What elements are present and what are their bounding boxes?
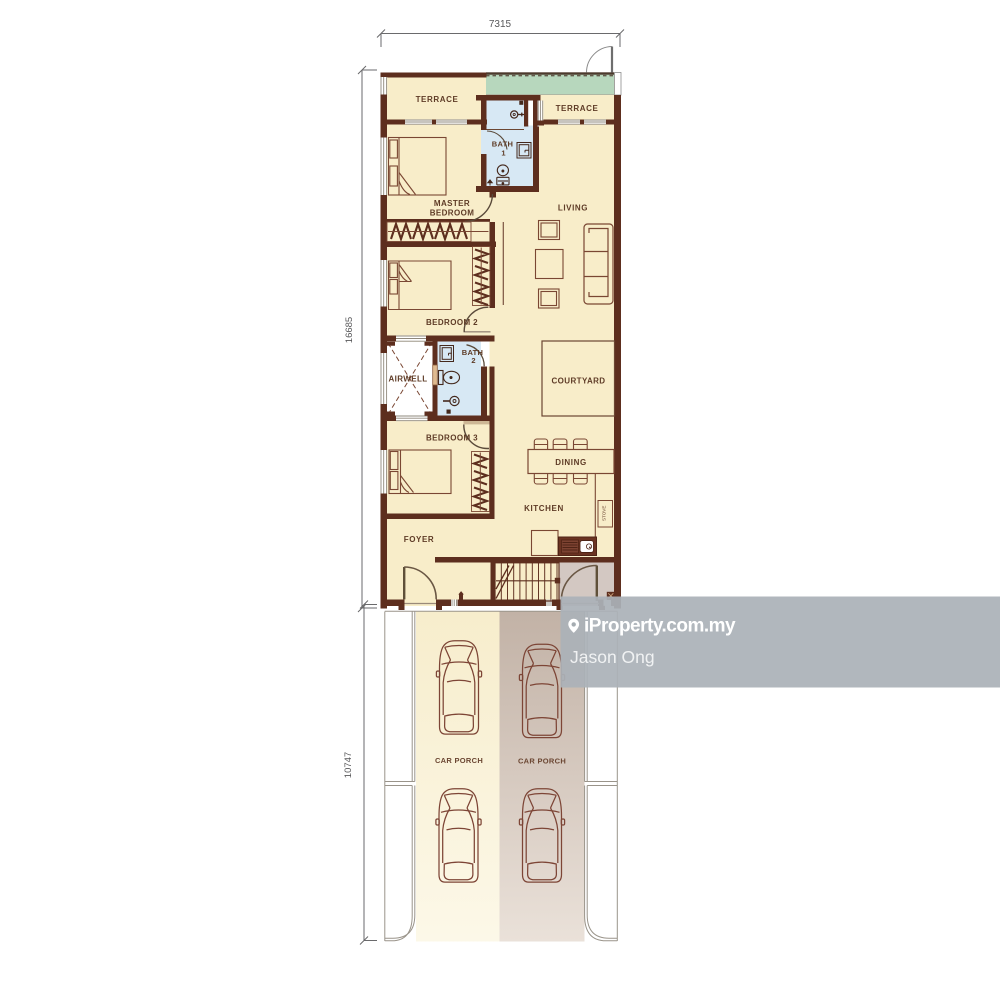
svg-text:KITCHEN: KITCHEN bbox=[524, 504, 564, 513]
svg-text:BEDROOM: BEDROOM bbox=[430, 209, 475, 218]
svg-text:Jason Ong: Jason Ong bbox=[570, 647, 655, 667]
svg-text:STOVE: STOVE bbox=[601, 506, 606, 522]
svg-text:iProperty.com.my: iProperty.com.my bbox=[584, 616, 736, 637]
svg-text:TERRACE: TERRACE bbox=[416, 95, 459, 104]
svg-text:CAR PORCH: CAR PORCH bbox=[518, 757, 566, 766]
svg-text:BEDROOM 2: BEDROOM 2 bbox=[426, 318, 478, 327]
svg-text:DINING: DINING bbox=[555, 458, 587, 467]
svg-text:10747: 10747 bbox=[343, 752, 354, 778]
svg-text:CAR PORCH: CAR PORCH bbox=[435, 756, 483, 765]
svg-text:FOYER: FOYER bbox=[404, 535, 435, 544]
svg-text:16685: 16685 bbox=[344, 317, 355, 343]
svg-text:2: 2 bbox=[471, 356, 475, 365]
svg-text:LIVING: LIVING bbox=[558, 204, 588, 213]
svg-text:BATH: BATH bbox=[492, 140, 513, 149]
svg-text:BEDROOM 3: BEDROOM 3 bbox=[426, 434, 478, 443]
svg-text:MASTER: MASTER bbox=[434, 199, 470, 208]
svg-text:7315: 7315 bbox=[489, 19, 512, 30]
svg-text:COURTYARD: COURTYARD bbox=[552, 377, 606, 386]
svg-text:1: 1 bbox=[501, 149, 505, 158]
svg-text:AIRWELL: AIRWELL bbox=[388, 374, 427, 383]
svg-text:TERRACE: TERRACE bbox=[556, 104, 599, 113]
